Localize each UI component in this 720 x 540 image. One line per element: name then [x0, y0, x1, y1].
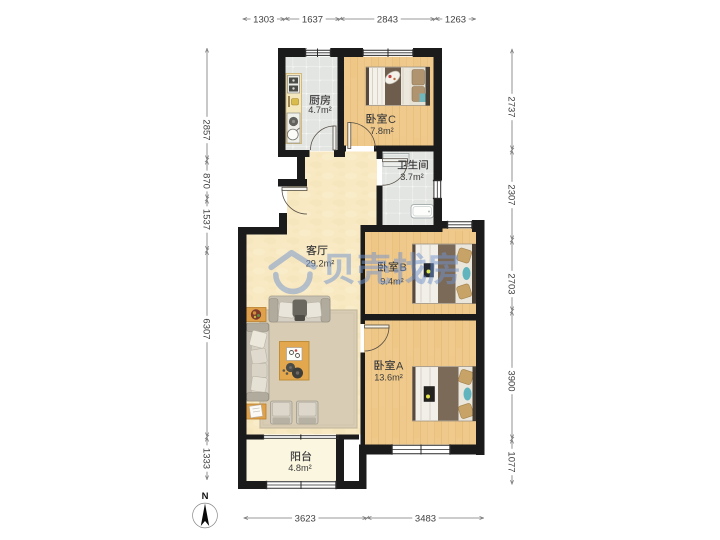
- svg-text:2307: 2307: [506, 184, 517, 205]
- svg-text:3483: 3483: [415, 513, 436, 524]
- svg-text:2857: 2857: [201, 119, 212, 140]
- svg-text:1333: 1333: [201, 448, 212, 469]
- svg-text:3900: 3900: [506, 370, 517, 391]
- svg-text:4.7m²: 4.7m²: [308, 105, 332, 115]
- svg-text:1077: 1077: [506, 451, 517, 472]
- svg-text:3.7m²: 3.7m²: [400, 172, 424, 182]
- svg-text:13.6m²: 13.6m²: [374, 373, 403, 383]
- svg-text:7.8m²: 7.8m²: [370, 126, 394, 136]
- svg-text:4.8m²: 4.8m²: [288, 463, 312, 473]
- svg-text:6307: 6307: [201, 318, 212, 339]
- svg-text:A: A: [396, 360, 404, 372]
- svg-text:C: C: [388, 114, 396, 126]
- svg-text:1263: 1263: [445, 14, 466, 25]
- svg-text:N: N: [202, 491, 209, 502]
- svg-text:2703: 2703: [506, 273, 517, 294]
- svg-text:870: 870: [201, 173, 212, 189]
- svg-text:1537: 1537: [201, 209, 212, 230]
- svg-text:1303: 1303: [253, 14, 274, 25]
- svg-text:1637: 1637: [302, 14, 323, 25]
- svg-text:3623: 3623: [295, 513, 316, 524]
- svg-text:2843: 2843: [377, 14, 398, 25]
- svg-text:2737: 2737: [506, 96, 517, 117]
